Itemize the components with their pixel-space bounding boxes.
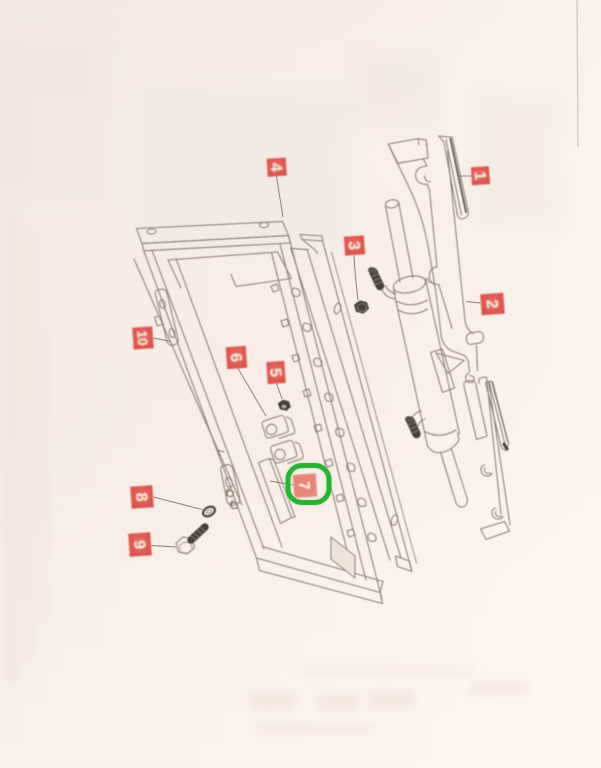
svg-text:6: 6 xyxy=(227,353,245,363)
svg-text:3: 3 xyxy=(345,241,363,251)
svg-text:4: 4 xyxy=(267,162,285,172)
svg-text:1: 1 xyxy=(471,171,489,181)
svg-text:10: 10 xyxy=(134,330,150,346)
svg-text:5: 5 xyxy=(266,368,284,378)
svg-text:7: 7 xyxy=(295,481,313,491)
svg-text:2: 2 xyxy=(483,299,501,309)
svg-text:9: 9 xyxy=(130,540,148,550)
svg-text:8: 8 xyxy=(132,492,150,502)
